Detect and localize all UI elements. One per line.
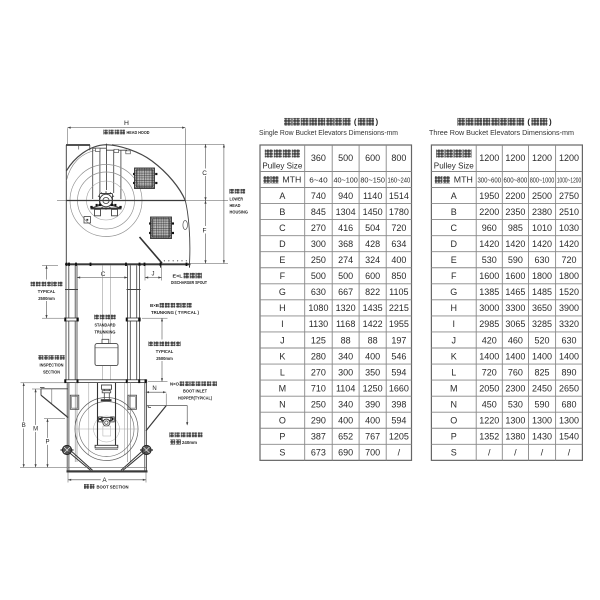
svg-text:INSPECTION: INSPECTION [40,363,64,368]
svg-text:520: 520 [535,335,550,345]
svg-text:2050: 2050 [479,383,499,393]
svg-text:LOWER: LOWER [230,196,244,201]
svg-text:1465: 1465 [505,287,525,297]
svg-text:1540: 1540 [559,432,579,442]
svg-text:398: 398 [391,399,406,409]
svg-text:850: 850 [391,271,406,281]
svg-text:1422: 1422 [363,319,383,329]
svg-text:80~150: 80~150 [360,175,385,184]
svg-text:A: A [279,191,285,201]
svg-text:G: G [279,287,286,297]
svg-text:2380: 2380 [532,207,552,217]
svg-text:K: K [451,351,457,361]
svg-text:1514: 1514 [389,191,409,201]
svg-text:890: 890 [561,367,576,377]
svg-text:2500mm: 2500mm [156,356,173,361]
svg-text:270: 270 [311,367,326,377]
svg-text:D: D [279,239,286,249]
svg-text:6~40: 6~40 [309,175,327,184]
svg-text:390: 390 [365,399,380,409]
svg-text:3650: 3650 [532,303,552,313]
svg-text:673: 673 [311,448,326,458]
svg-text:N×O: N×O [170,381,179,386]
svg-text:1010: 1010 [532,223,552,233]
svg-text:DISCHARGER SPOUT: DISCHARGER SPOUT [171,280,207,285]
svg-text:500: 500 [338,153,353,163]
svg-text:A: A [102,477,107,484]
svg-text:2510: 2510 [559,207,579,217]
svg-text:1485: 1485 [532,287,552,297]
svg-text:1400: 1400 [479,351,499,361]
svg-text:985: 985 [508,223,523,233]
svg-text:1200: 1200 [559,153,579,163]
svg-text:420: 420 [482,335,497,345]
svg-text:40~100: 40~100 [333,175,357,184]
svg-text:G: G [450,287,457,297]
svg-text:767: 767 [365,432,380,442]
svg-text:740: 740 [311,191,326,201]
svg-text:428: 428 [365,239,380,249]
svg-text:500: 500 [338,271,353,281]
svg-text:3000: 3000 [479,303,499,313]
svg-text:M: M [33,427,38,433]
svg-text:K: K [279,351,285,361]
svg-text:1430: 1430 [532,432,552,442]
svg-text:667: 667 [338,287,353,297]
svg-text:1105: 1105 [389,287,408,297]
svg-text:S: S [451,448,457,458]
svg-text:400: 400 [365,351,380,361]
svg-text:B: B [279,207,285,217]
svg-text:450: 450 [482,399,497,409]
svg-text:1080: 1080 [308,303,328,313]
svg-text:1955: 1955 [389,319,409,329]
svg-text:845: 845 [311,207,326,217]
svg-text:2200: 2200 [505,191,525,201]
svg-text:250: 250 [311,399,326,409]
svg-text:1140: 1140 [363,191,382,201]
svg-text:1200: 1200 [532,153,552,163]
svg-text:O: O [450,416,457,426]
svg-text:400: 400 [365,416,380,426]
svg-text:1200: 1200 [505,153,525,163]
svg-text:B: B [22,423,26,429]
svg-text:): ) [549,118,552,127]
svg-text:504: 504 [365,223,380,233]
svg-text:600~800: 600~800 [504,175,528,184]
svg-text:HEAD HOOD: HEAD HOOD [127,130,151,135]
svg-text:M: M [279,383,287,393]
svg-text:600: 600 [365,271,380,281]
svg-text:N: N [451,399,458,409]
svg-text:400: 400 [338,416,353,426]
svg-text:I: I [281,319,284,329]
svg-text:MTH: MTH [454,176,473,185]
svg-text:710: 710 [311,383,326,393]
svg-text:416: 416 [338,223,353,233]
svg-text:L: L [280,367,285,377]
svg-text:Pulley Size: Pulley Size [262,161,302,171]
svg-text:E×L: E×L [173,273,183,279]
svg-text:680: 680 [561,399,576,409]
svg-text:340: 340 [338,351,353,361]
svg-text:2985: 2985 [479,319,499,329]
svg-text:D: D [451,239,458,249]
svg-text:BOOT INLET: BOOT INLET [183,388,207,393]
svg-text:300: 300 [338,367,353,377]
svg-text:530: 530 [508,399,523,409]
svg-text:E: E [279,255,285,265]
svg-text:TYPICAL: TYPICAL [156,349,174,354]
svg-text:2450: 2450 [532,383,552,393]
svg-text:(: ( [354,118,357,127]
svg-text:2750: 2750 [559,191,579,201]
svg-text:387: 387 [311,432,326,442]
svg-text:760: 760 [508,367,523,377]
svg-text:590: 590 [535,399,550,409]
svg-text:88: 88 [341,335,351,345]
svg-text:350: 350 [365,367,380,377]
svg-text:1320: 1320 [336,303,356,313]
svg-text:720: 720 [482,367,497,377]
svg-text:3900: 3900 [559,303,579,313]
svg-text:B: B [451,207,457,217]
svg-text:1420: 1420 [532,239,552,249]
svg-text:HEAD: HEAD [230,203,242,208]
svg-text:(: ( [527,118,530,127]
svg-text:1104: 1104 [336,383,355,393]
svg-text:Single Row Bucket Elevators Di: Single Row Bucket Elevators Dimensions-m… [259,130,398,137]
svg-text:125: 125 [311,335,326,345]
svg-text:2300: 2300 [505,383,525,393]
svg-text:270: 270 [311,223,326,233]
svg-text:C: C [279,223,286,233]
svg-text:Three Row Bucket Elevators Dim: Three Row Bucket Elevators Dimensions-mm [429,130,574,137]
svg-text:300: 300 [311,239,326,249]
svg-text:STANDARD: STANDARD [95,322,117,327]
svg-text:940: 940 [338,191,353,201]
svg-text:1352: 1352 [479,432,499,442]
svg-text:720: 720 [391,223,406,233]
svg-text:1420: 1420 [479,239,499,249]
svg-text:630: 630 [535,255,550,265]
svg-text:1130: 1130 [309,319,328,329]
svg-text:290: 290 [311,416,326,426]
svg-text:E: E [451,255,457,265]
svg-text:1168: 1168 [336,319,355,329]
svg-text:3065: 3065 [505,319,525,329]
svg-text:1300: 1300 [505,416,525,426]
svg-text:1200: 1200 [479,153,499,163]
svg-text:822: 822 [365,287,380,297]
svg-text:I: I [453,319,456,329]
svg-text:N: N [279,399,286,409]
svg-text:360: 360 [311,153,326,163]
svg-text:3320: 3320 [559,319,579,329]
svg-text:F: F [280,271,286,281]
svg-text:690: 690 [338,448,353,458]
svg-text:460: 460 [508,335,523,345]
svg-text:594: 594 [391,416,406,426]
svg-text:634: 634 [391,239,406,249]
svg-text:700: 700 [365,448,380,458]
svg-text:L: L [451,367,456,377]
svg-text:1660: 1660 [389,383,409,393]
svg-text:652: 652 [338,432,353,442]
svg-text:1600: 1600 [479,271,499,281]
svg-text:800~1000: 800~1000 [530,175,555,184]
svg-text:2200: 2200 [479,207,499,217]
svg-text:3300: 3300 [505,303,525,313]
svg-text:C: C [101,271,106,278]
svg-text:O: O [279,416,286,426]
svg-text:1220: 1220 [479,416,499,426]
svg-text:1380: 1380 [505,432,525,442]
svg-text:B×B: B×B [150,303,160,308]
svg-text:160~240: 160~240 [387,175,410,184]
svg-text:1780: 1780 [389,207,409,217]
svg-text:A: A [451,191,457,201]
svg-text:TYPICAL: TYPICAL [38,289,56,294]
svg-text:): ) [376,118,379,127]
svg-text:960: 960 [482,223,497,233]
svg-text:324: 324 [365,255,380,265]
svg-text:1030: 1030 [559,223,579,233]
svg-text:Pulley Size: Pulley Size [434,161,474,171]
svg-text:P: P [279,432,285,442]
svg-text:H: H [451,303,458,313]
svg-text:P: P [45,440,49,446]
svg-text:H: H [279,303,286,313]
svg-text:3285: 3285 [532,319,552,329]
svg-text:1304: 1304 [336,207,356,217]
svg-text:1205: 1205 [389,432,409,442]
svg-text:HOPPER(TYPICAL): HOPPER(TYPICAL) [178,395,212,400]
svg-text:197: 197 [391,335,406,345]
svg-text:1800: 1800 [559,271,579,281]
svg-text:368: 368 [338,239,353,249]
svg-text:1450: 1450 [363,207,383,217]
svg-text:1420: 1420 [505,239,525,249]
svg-text:1420: 1420 [559,239,579,249]
svg-text:1400: 1400 [532,351,552,361]
svg-text:2500: 2500 [532,191,552,201]
svg-text:1520: 1520 [559,287,579,297]
svg-text:1300: 1300 [559,416,579,426]
svg-text:250: 250 [311,255,326,265]
svg-text:F: F [203,227,207,234]
svg-text:2215: 2215 [389,303,409,313]
svg-text:P: P [451,432,457,442]
svg-text:C: C [202,170,207,177]
svg-text:1300: 1300 [532,416,552,426]
svg-text:600: 600 [365,153,380,163]
svg-text:825: 825 [535,367,550,377]
svg-text:240mm: 240mm [182,440,197,445]
svg-text:BOOT SECTION: BOOT SECTION [97,484,130,489]
svg-text:720: 720 [561,255,576,265]
svg-text:HOUSING: HOUSING [230,209,249,214]
svg-text:500: 500 [311,271,326,281]
svg-text:800: 800 [391,153,406,163]
svg-text:590: 590 [508,255,523,265]
svg-text:2500mm: 2500mm [38,296,55,301]
svg-text:C: C [451,223,458,233]
svg-text:TRUNKING ( TYPICAL ): TRUNKING ( TYPICAL ) [151,310,199,315]
svg-text:630: 630 [561,335,576,345]
svg-text:N: N [152,386,156,392]
svg-text:M: M [450,383,458,393]
svg-text:F: F [451,271,457,281]
svg-text:300~600: 300~600 [477,175,501,184]
svg-text:1385: 1385 [479,287,499,297]
svg-text:J: J [452,335,457,345]
svg-text:530: 530 [482,255,497,265]
svg-text:H: H [124,120,129,127]
svg-text:1800: 1800 [532,271,552,281]
svg-text:340: 340 [338,399,353,409]
svg-text:1950: 1950 [479,191,499,201]
svg-text:MTH: MTH [282,176,301,185]
svg-text:630: 630 [311,287,326,297]
svg-text:274: 274 [338,255,353,265]
svg-text:1250: 1250 [363,383,383,393]
svg-text:546: 546 [391,351,406,361]
svg-text:SECTION: SECTION [43,370,60,375]
svg-text:400: 400 [391,255,406,265]
svg-text:2350: 2350 [505,207,525,217]
svg-text:J: J [280,335,285,345]
svg-text:1000~1200: 1000~1200 [557,175,581,184]
svg-text:88: 88 [368,335,378,345]
svg-text:1600: 1600 [505,271,525,281]
svg-text:TRUNKING: TRUNKING [95,329,116,334]
svg-text:280: 280 [311,351,326,361]
svg-text:J: J [152,272,155,278]
svg-text:2650: 2650 [559,383,579,393]
svg-text:1400: 1400 [505,351,525,361]
svg-text:594: 594 [391,367,406,377]
svg-text:1400: 1400 [559,351,579,361]
svg-text:1435: 1435 [363,303,383,313]
svg-text:S: S [279,448,285,458]
